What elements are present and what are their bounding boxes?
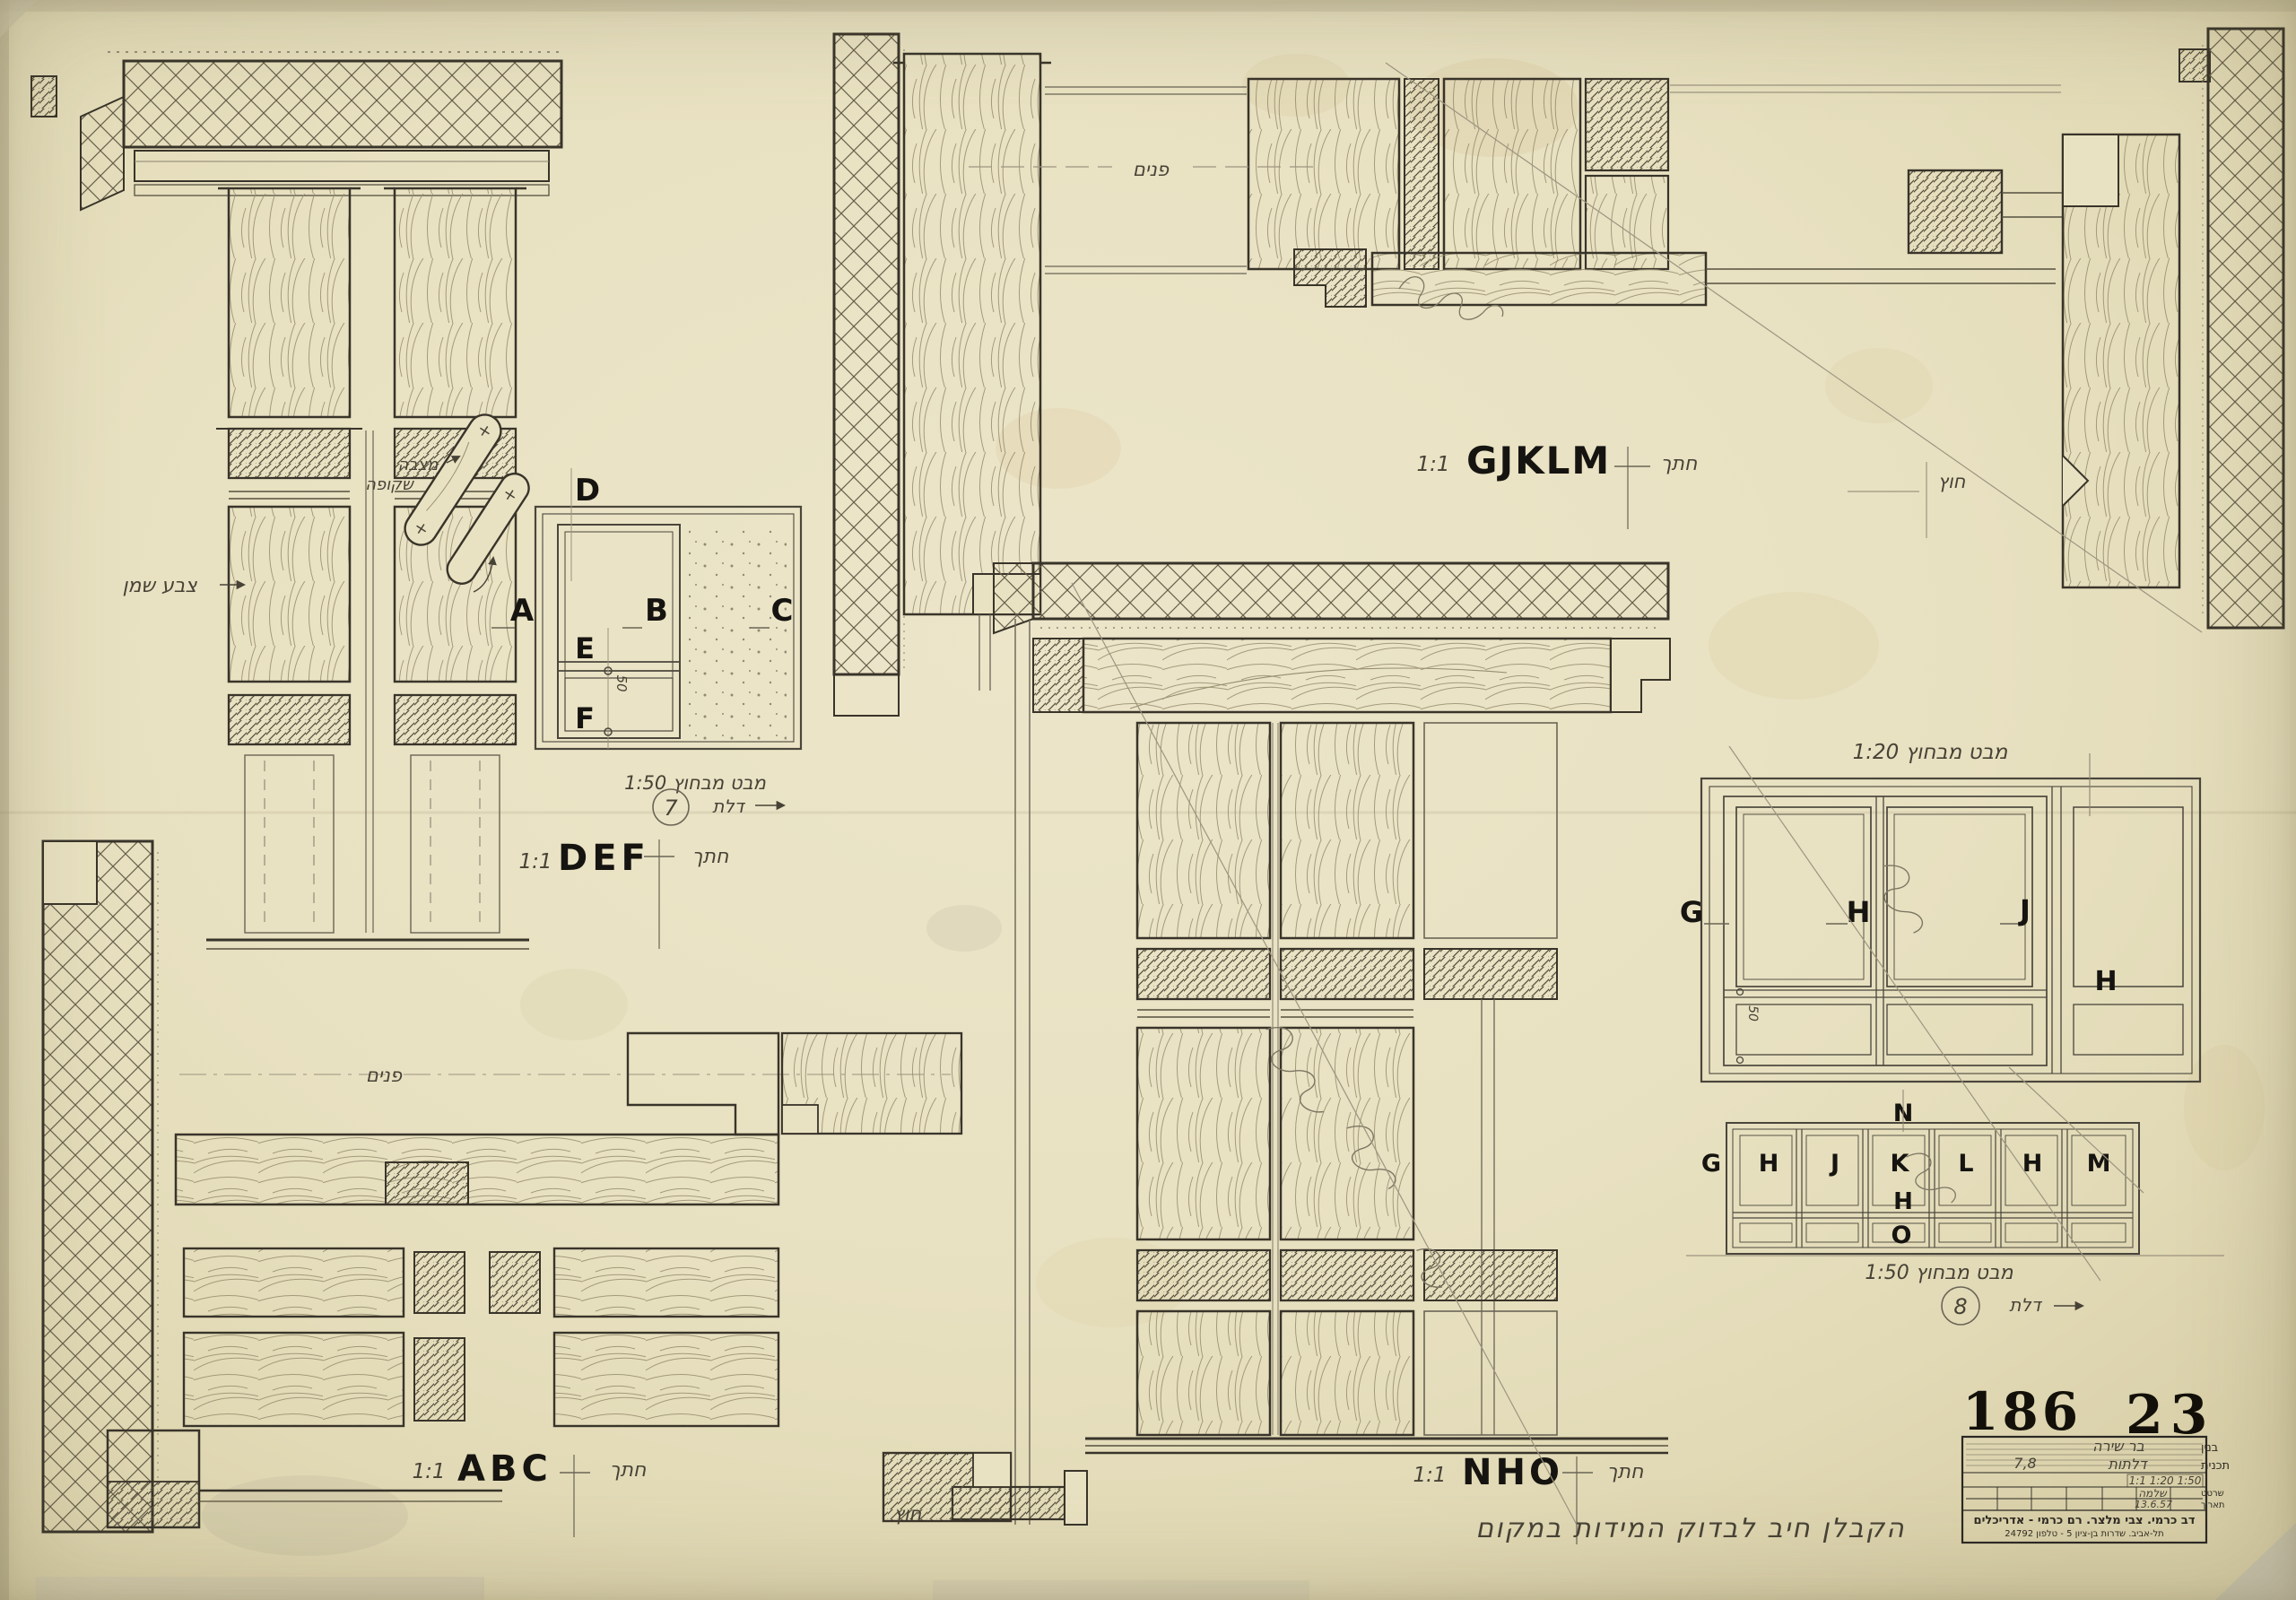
elevation-letter: B — [645, 593, 668, 629]
stamp-plan-numbers: 7,8 — [2013, 1455, 2036, 1472]
elevation-caption: מבט מבחוץ 1:20 — [1853, 741, 2009, 764]
label-oil-paint: צבע שמן — [122, 575, 197, 597]
door7-caption: מבט מבחוץ 1:50 — [624, 772, 766, 794]
label-outside-bottom: חוץ — [894, 1503, 922, 1525]
elevation-letter: H — [2094, 966, 2117, 997]
jamb-section-right — [2063, 29, 2283, 628]
cut-word: חתך — [1607, 1461, 1644, 1483]
sheet-number-left: 186 — [1962, 1381, 2082, 1442]
stamp-firm-line: דב כרמי. צבי מלצר. רם כרמי - אדריכלים — [1974, 1514, 2196, 1527]
elevation-letter: A — [510, 593, 535, 629]
label-def: 1:1 DEF חתך — [518, 838, 728, 949]
label-inside-top: פנים — [1133, 159, 1170, 180]
stamp-scales-value: 1:1 1:20 1:50 — [2129, 1474, 2202, 1487]
section-name: ABC — [457, 1448, 552, 1490]
elevation-letter: H — [2022, 1150, 2043, 1178]
section-name: NHO — [1462, 1452, 1563, 1493]
elevation-letter: H — [1847, 895, 1871, 929]
window-elevation-120: מבט מבחוץ 1:20 G H J H 50 — [1680, 741, 2200, 1082]
door8-elevation-150: N G H J K L H M H O מבט מבחוץ 1:50 8 דלת — [1686, 1090, 2224, 1325]
section-name: GJKLM — [1466, 439, 1611, 483]
door-number: 8 — [1953, 1294, 1967, 1319]
handwritten-scribble — [1867, 857, 1941, 935]
stamp-address-line: תל-אביב. שדרות בן-ציון 5 - טלפון 24792 — [2005, 1529, 2163, 1539]
stamp-building-label: בנין — [2201, 1441, 2218, 1455]
stamp-date-label: תאריך — [2201, 1500, 2225, 1510]
wall-section-top-left — [31, 52, 565, 210]
label-outside-right: חוץ — [1938, 471, 1966, 492]
elevation-letter: C — [771, 593, 794, 629]
stamp-plan-label: תכנית — [2201, 1459, 2230, 1473]
scale-label: 1:1 — [518, 850, 552, 874]
jamb-sections-def — [206, 188, 535, 949]
head-sections-top-center — [1248, 79, 2063, 319]
elevation-letter: E — [575, 631, 595, 665]
elevation-letter: H — [1893, 1188, 1913, 1215]
cut-word: חתך — [692, 846, 729, 868]
elevation-letter: M — [2087, 1150, 2111, 1178]
title-block-stamp: בנין בר שירה תכנית דלתות 7,8 1:1 1:20 1:… — [1962, 1437, 2230, 1543]
stamp-drafter-value: שלמה — [2138, 1487, 2168, 1500]
elevation-letter: G — [1701, 1150, 1721, 1178]
elevation-letter: L — [1958, 1150, 1973, 1178]
label-gjklm: 1:1 GJKLM חתך — [1416, 439, 1697, 529]
stamp-drafter-label: שרטט — [2201, 1489, 2224, 1499]
elevation-letter: J — [1829, 1150, 1839, 1178]
drawing-canvas: D A B C E F 50 מבט מבחוץ 1:50 7 דלת 1:1 … — [0, 0, 2296, 1600]
label-inside-left: פנים — [366, 1065, 403, 1086]
door-word: דלת — [2009, 1294, 2043, 1316]
cut-word: חתך — [610, 1459, 647, 1482]
elevation-letter: F — [575, 701, 595, 735]
section-name: DEF — [558, 838, 650, 879]
scale-label: 1:1 — [1416, 453, 1449, 476]
scale-label: 1:1 — [1413, 1464, 1446, 1487]
dimension-50: 50 — [1745, 1005, 1760, 1022]
cut-word: חתך — [1661, 453, 1698, 475]
door-word: דלת — [712, 796, 746, 817]
stile-sections-nho — [952, 723, 1668, 1525]
elevation-letter: K — [1891, 1150, 1910, 1178]
wall-section-bottom-left — [43, 841, 158, 1532]
stamp-date-value: 13.6.57 — [2135, 1499, 2172, 1510]
stamp-building-value: בר שירה — [2092, 1438, 2144, 1455]
elevation-letter: G — [1680, 895, 1703, 929]
stile-section — [216, 188, 362, 933]
stamp-plan-value: דלתות — [2108, 1456, 2147, 1473]
scale-label: 1:1 — [412, 1460, 445, 1483]
label-pull-line1: מצבה — [397, 456, 439, 474]
contractor-note: הקבלן חיב לבדוק המידות במקום — [1475, 1513, 1906, 1544]
elevation-caption: מבט מבחוץ 1:50 — [1865, 1262, 2013, 1284]
drawing-sheet: D A B C E F 50 מבט מבחוץ 1:50 7 דלת 1:1 … — [0, 0, 2296, 1600]
door-number: 7 — [664, 796, 678, 821]
elevation-letter: O — [1892, 1222, 1912, 1249]
elevation-letter: H — [1759, 1150, 1779, 1178]
elevation-letter: J — [2018, 893, 2031, 927]
door7-elevation: D A B C E F 50 מבט מבחוץ 1:50 7 דלת — [491, 468, 801, 825]
label-abc: 1:1 ABC חתך — [412, 1448, 646, 1537]
label-pull-line2: שקופה — [365, 475, 414, 494]
elevation-letter: D — [575, 473, 600, 509]
dimension-50: 50 — [613, 674, 630, 691]
sill-sections-abc — [108, 1033, 1011, 1527]
